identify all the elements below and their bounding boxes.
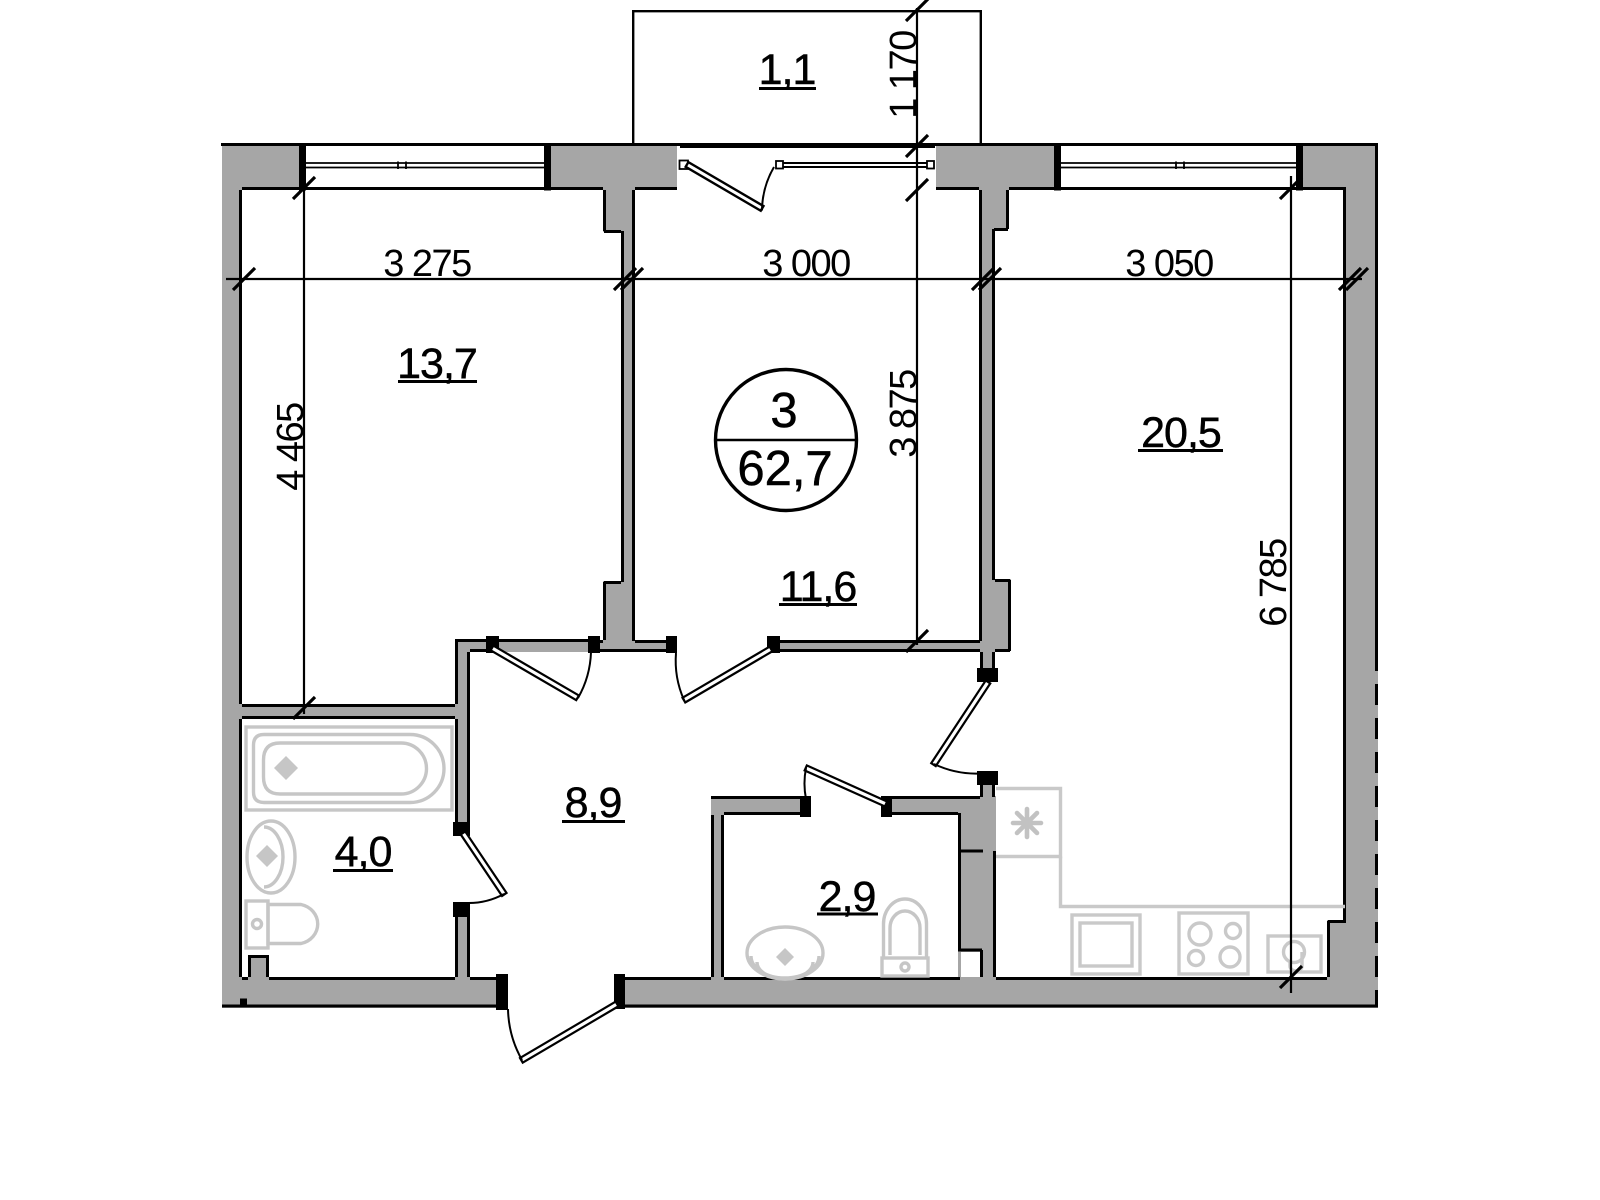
svg-text:4 465: 4 465 [270,403,312,491]
svg-text:4,0: 4,0 [335,828,392,876]
svg-text:62,7: 62,7 [737,442,832,496]
svg-text:3 275: 3 275 [383,243,471,285]
svg-text:1 170: 1 170 [883,31,925,119]
svg-text:3 000: 3 000 [762,243,850,285]
svg-text:1,1: 1,1 [759,46,816,94]
svg-text:8,9: 8,9 [565,779,622,827]
svg-text:3 875: 3 875 [883,370,925,458]
svg-text:3: 3 [770,384,797,438]
svg-text:3 050: 3 050 [1125,243,1213,285]
svg-text:6 785: 6 785 [1253,539,1295,627]
